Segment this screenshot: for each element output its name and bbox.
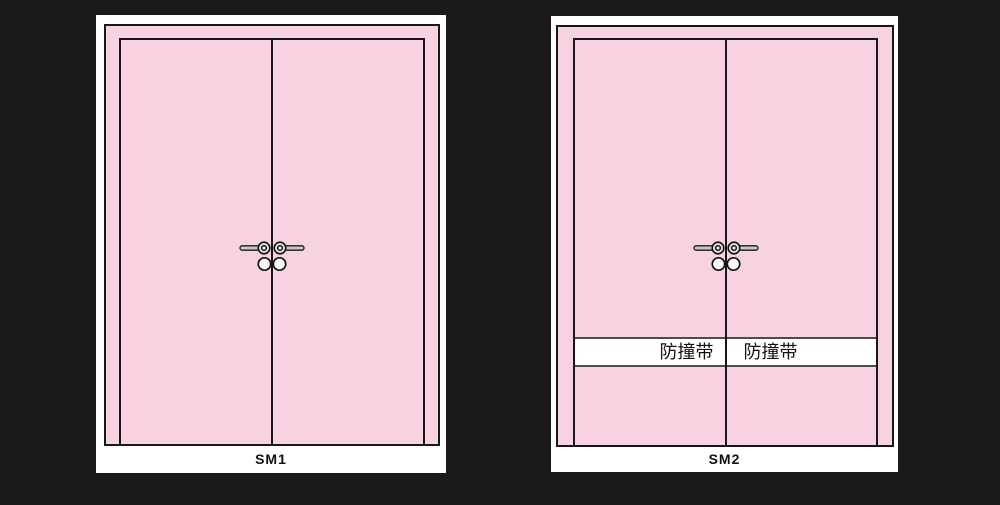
door-handles-icon — [232, 236, 312, 278]
door-diagram-sm1: SM1 — [96, 15, 446, 473]
panel-caption-sm2: SM2 — [551, 447, 898, 472]
door-leaves: 防撞带 防撞带 — [573, 38, 878, 445]
door-handles-icon — [686, 236, 766, 278]
panel-caption-sm1: SM1 — [96, 446, 446, 473]
door-frame — [104, 24, 440, 446]
door-diagram-sm2: 防撞带 防撞带 SM2 — [551, 16, 898, 472]
door-frame: 防撞带 防撞带 — [556, 25, 894, 447]
door-leaves — [119, 38, 425, 444]
bumper-strip-right-label: 防撞带 — [726, 339, 877, 365]
bumper-strip-left-label: 防撞带 — [575, 339, 726, 365]
